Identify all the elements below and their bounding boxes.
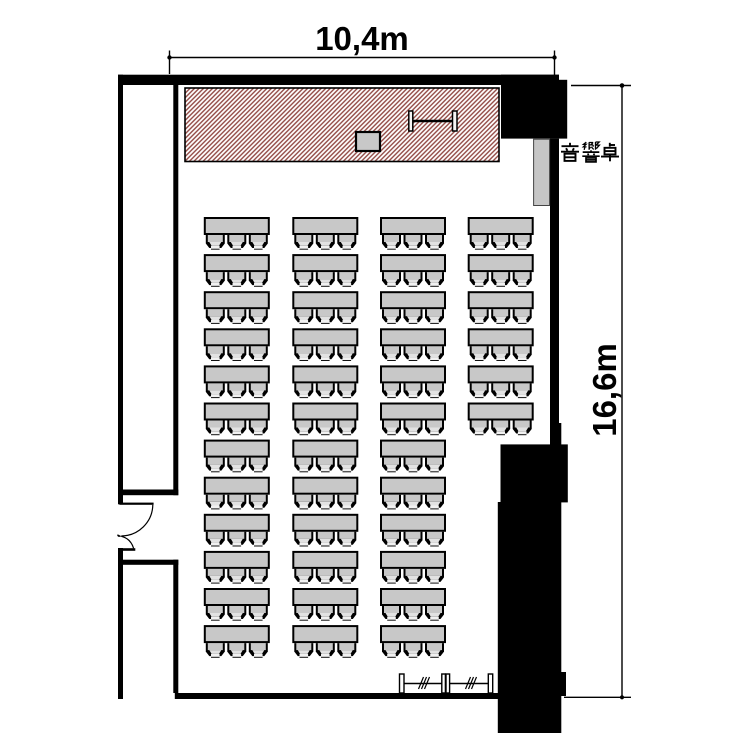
svg-text:10,4m: 10,4m — [315, 20, 409, 57]
svg-text:16,6m: 16,6m — [586, 343, 623, 437]
